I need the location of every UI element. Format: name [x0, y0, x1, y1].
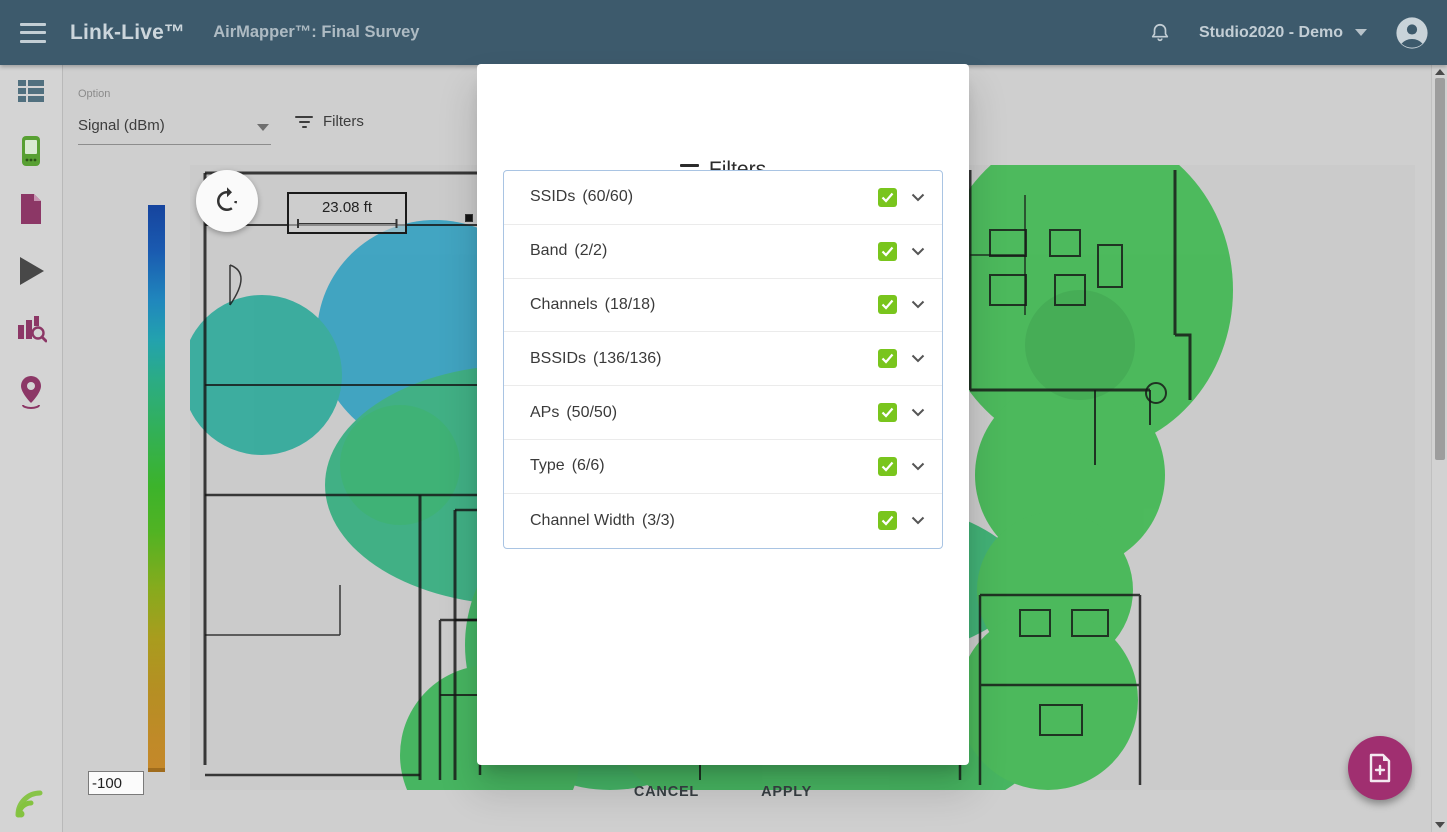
filter-label: APs [530, 404, 559, 422]
dialog-actions: CANCEL APPLY [477, 776, 969, 808]
filter-row-band[interactable]: Band (2/2) [504, 225, 942, 279]
add-report-fab[interactable] [1348, 736, 1412, 800]
chevron-down-icon[interactable] [911, 408, 925, 417]
checkbox-checked-icon[interactable] [878, 188, 897, 207]
filter-count: (50/50) [566, 404, 617, 422]
device-icon[interactable] [20, 135, 42, 167]
scale-min-input[interactable] [88, 771, 144, 795]
user-avatar-icon[interactable] [1395, 16, 1429, 50]
left-nav-rail [0, 65, 63, 832]
notifications-icon[interactable] [1149, 21, 1171, 45]
wifi-feed-icon[interactable] [14, 787, 48, 819]
rotate-map-button[interactable] [196, 170, 258, 232]
option-select[interactable]: Signal (dBm) [78, 117, 165, 134]
apply-button[interactable]: APPLY [745, 776, 828, 808]
chevron-down-icon[interactable] [911, 300, 925, 309]
filter-count: (60/60) [582, 188, 633, 206]
organization-name: Studio2020 - Demo [1199, 24, 1343, 42]
filter-row-aps[interactable]: APs (50/50) [504, 386, 942, 440]
scroll-down-arrow[interactable] [1435, 822, 1445, 828]
filter-label: Band [530, 242, 567, 260]
filter-category-list: SSIDs (60/60) Band (2/2) Channels (18/18… [503, 170, 943, 549]
filter-list-icon [295, 116, 313, 128]
chevron-down-icon[interactable] [911, 516, 925, 525]
filters-button-label: Filters [323, 113, 364, 130]
checkbox-checked-icon[interactable] [878, 349, 897, 368]
filter-row-ssids[interactable]: SSIDs (60/60) [504, 171, 942, 225]
filter-count: (136/136) [593, 350, 662, 368]
checkbox-checked-icon[interactable] [878, 457, 897, 476]
filter-count: (2/2) [574, 242, 607, 260]
filter-label: Channels [530, 296, 598, 314]
document-icon[interactable] [18, 193, 44, 225]
map-scale-label: 23.08 ft [322, 199, 372, 216]
signal-gradient-bar [148, 205, 165, 768]
results-list-icon[interactable] [16, 78, 46, 104]
option-caret-icon[interactable] [257, 124, 269, 131]
menu-icon[interactable] [20, 23, 46, 43]
organization-selector[interactable]: Studio2020 - Demo [1199, 24, 1367, 42]
filter-count: (6/6) [572, 457, 605, 475]
chevron-down-icon[interactable] [911, 354, 925, 363]
location-pin-icon[interactable] [17, 375, 45, 409]
checkbox-checked-icon[interactable] [878, 242, 897, 261]
filter-label: SSIDs [530, 188, 575, 206]
rotate-icon [212, 186, 242, 216]
checkbox-checked-icon[interactable] [878, 511, 897, 530]
filters-dialog: Filters SSIDs (60/60) Band (2/2) Channel… [477, 64, 969, 765]
filter-row-bssids[interactable]: BSSIDs (136/136) [504, 332, 942, 386]
filters-button[interactable]: Filters [295, 113, 364, 130]
scroll-up-arrow[interactable] [1435, 69, 1445, 75]
filter-count: (3/3) [642, 512, 675, 530]
option-label: Option [78, 88, 110, 100]
map-scale-indicator: 23.08 ft [287, 192, 407, 234]
option-underline [78, 144, 271, 145]
filter-row-channels[interactable]: Channels (18/18) [504, 279, 942, 333]
chevron-down-icon[interactable] [911, 247, 925, 256]
map-scale-ruler [297, 219, 397, 228]
app-top-bar: Link-Live™ AirMapper™: Final Survey Stud… [0, 0, 1447, 65]
airmapper-screen: 23.08 ft 0 -10 -20 -30 -40 -50 -60 -70 -… [0, 0, 1447, 832]
play-icon[interactable] [16, 255, 46, 287]
chevron-down-icon[interactable] [911, 462, 925, 471]
cancel-button[interactable]: CANCEL [618, 776, 715, 808]
vertical-scrollbar[interactable] [1431, 65, 1447, 832]
filter-label: BSSIDs [530, 350, 586, 368]
checkbox-checked-icon[interactable] [878, 295, 897, 314]
brand-logo[interactable]: Link-Live™ [70, 21, 185, 45]
filter-row-type[interactable]: Type (6/6) [504, 440, 942, 494]
filter-row-channel-width[interactable]: Channel Width (3/3) [504, 494, 942, 548]
org-caret-icon [1355, 29, 1367, 36]
filter-count: (18/18) [605, 296, 656, 314]
add-document-icon [1367, 753, 1393, 783]
chevron-down-icon[interactable] [911, 193, 925, 202]
analysis-chart-icon[interactable] [15, 313, 47, 345]
checkbox-checked-icon[interactable] [878, 403, 897, 422]
filter-label: Channel Width [530, 512, 635, 530]
scrollbar-thumb[interactable] [1435, 78, 1445, 460]
filter-label: Type [530, 457, 565, 475]
page-title: AirMapper™: Final Survey [213, 23, 419, 42]
